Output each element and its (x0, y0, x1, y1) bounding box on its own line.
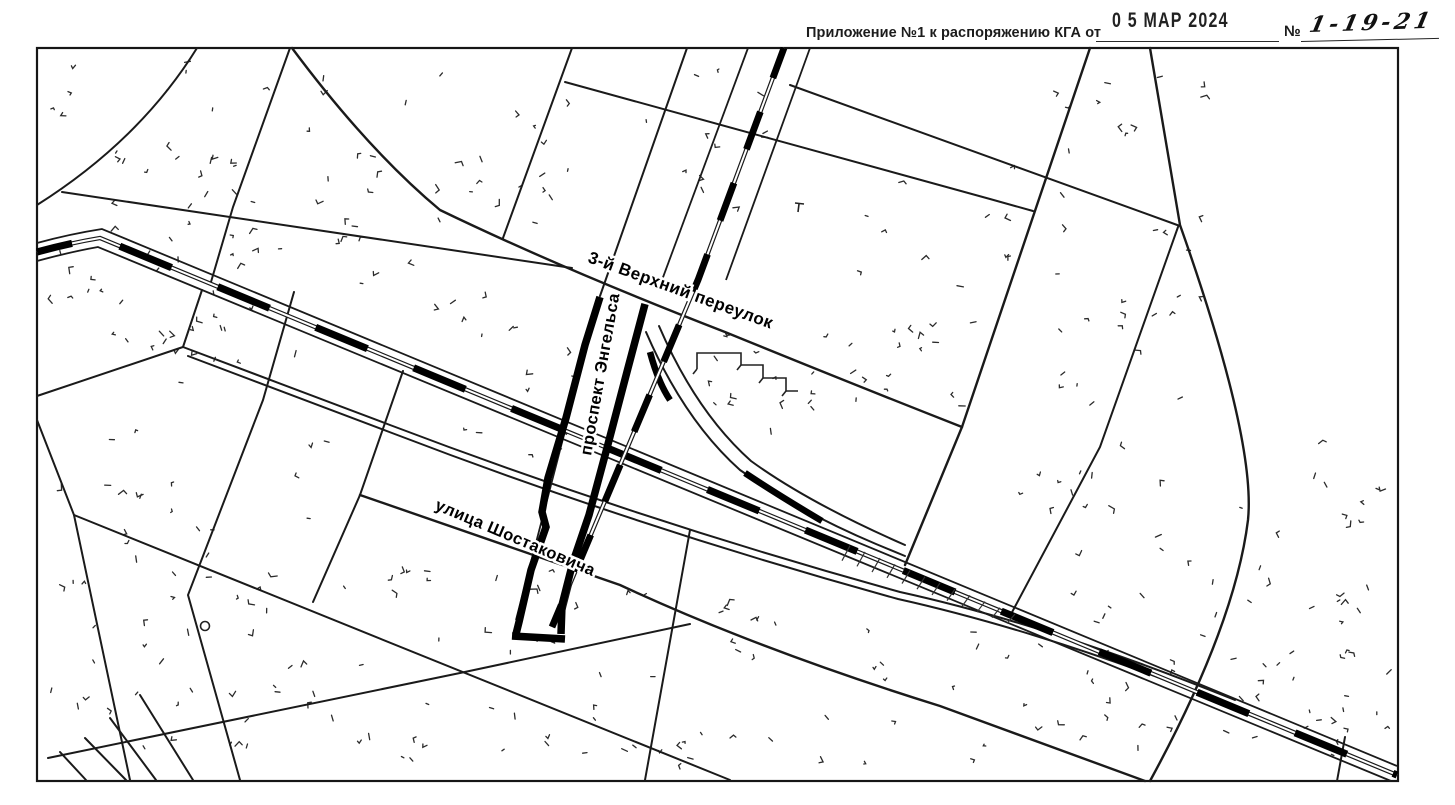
road-connector-arc (646, 326, 905, 556)
scanned-map-page: Приложение №1 к распоряжению КГА от 0 5 … (0, 0, 1455, 805)
map-border (37, 48, 1398, 781)
survey-point-circle (201, 622, 210, 631)
road-shostakovicha (360, 495, 1145, 781)
vegetation-marks (48, 61, 1391, 769)
road-prospekt-engelsa (516, 48, 810, 628)
map-canvas: 3-й Верхний переулокпроспект Энгельсаули… (0, 0, 1455, 805)
street-label-shostakovicha: улица Шостаковича (432, 496, 598, 580)
street-label-engelsa: проспект Энгельса (577, 291, 623, 457)
